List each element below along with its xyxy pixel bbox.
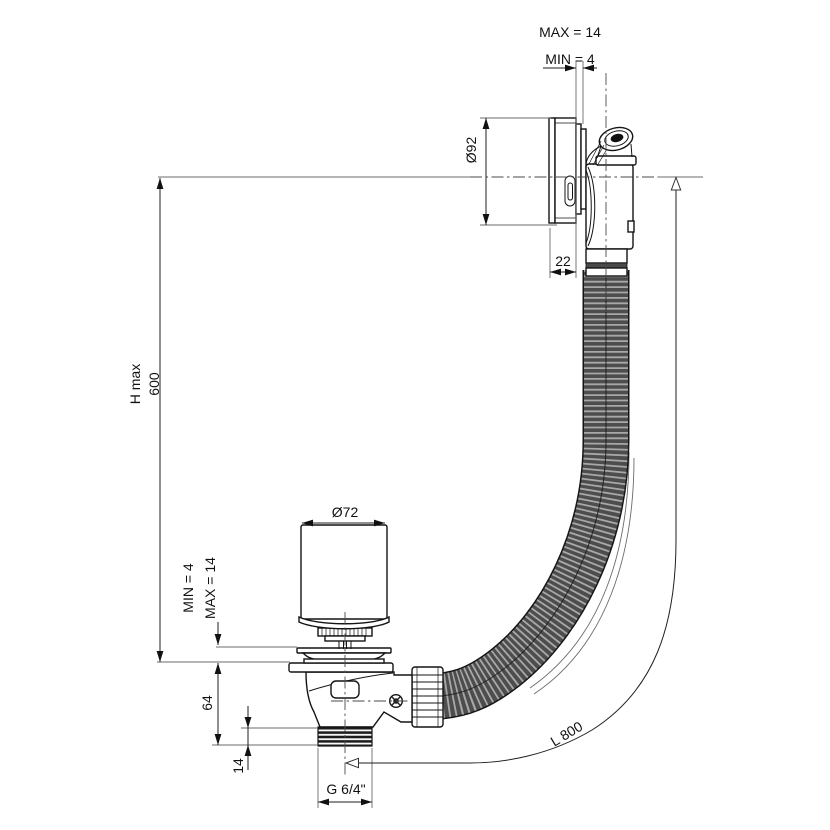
neck-ring-2 — [581, 129, 586, 209]
connector-band-2 — [586, 268, 627, 276]
label-thread-size: G 6/4" — [326, 781, 365, 797]
label-thread-length: 14 — [230, 758, 246, 774]
drawing-canvas: MAX = 14 MIN = 4 Ø92 22 H max 600 Ø72 MI… — [0, 0, 830, 830]
technical-drawing: MAX = 14 MIN = 4 Ø92 22 H max 600 Ø72 MI… — [0, 0, 830, 830]
cable-boss — [586, 124, 636, 166]
connector-band — [586, 249, 627, 263]
label-wall-max-top: MAX = 14 — [539, 24, 601, 40]
label-plug-diameter: Ø72 — [332, 504, 359, 520]
label-body-height: 64 — [199, 695, 215, 711]
neck-ring-1 — [576, 124, 581, 214]
label-height-max: H max — [127, 364, 143, 404]
label-overflow-depth: 22 — [555, 253, 571, 269]
faceplate-body — [555, 118, 576, 223]
faceplate-front — [549, 118, 555, 223]
leader-arrow-up — [671, 178, 680, 191]
label-seal-min: MIN = 4 — [180, 563, 196, 613]
body-clip-notch — [628, 221, 634, 232]
label-overflow-diameter: Ø92 — [463, 137, 479, 164]
waste-drain — [289, 525, 443, 746]
label-hose-length: L 800 — [548, 718, 586, 750]
label-seal-max: MAX = 14 — [202, 557, 218, 619]
label-height-value: 600 — [146, 372, 162, 396]
leader-arrow-left — [346, 758, 359, 767]
flexible-hose — [441, 270, 606, 696]
label-wall-min-top: MIN = 4 — [545, 51, 595, 67]
waste-flange — [297, 648, 391, 663]
connector-ring-dark — [586, 263, 627, 268]
drain-top-flange — [289, 663, 393, 672]
hose-nut — [412, 667, 443, 727]
popup-cap — [299, 525, 389, 629]
